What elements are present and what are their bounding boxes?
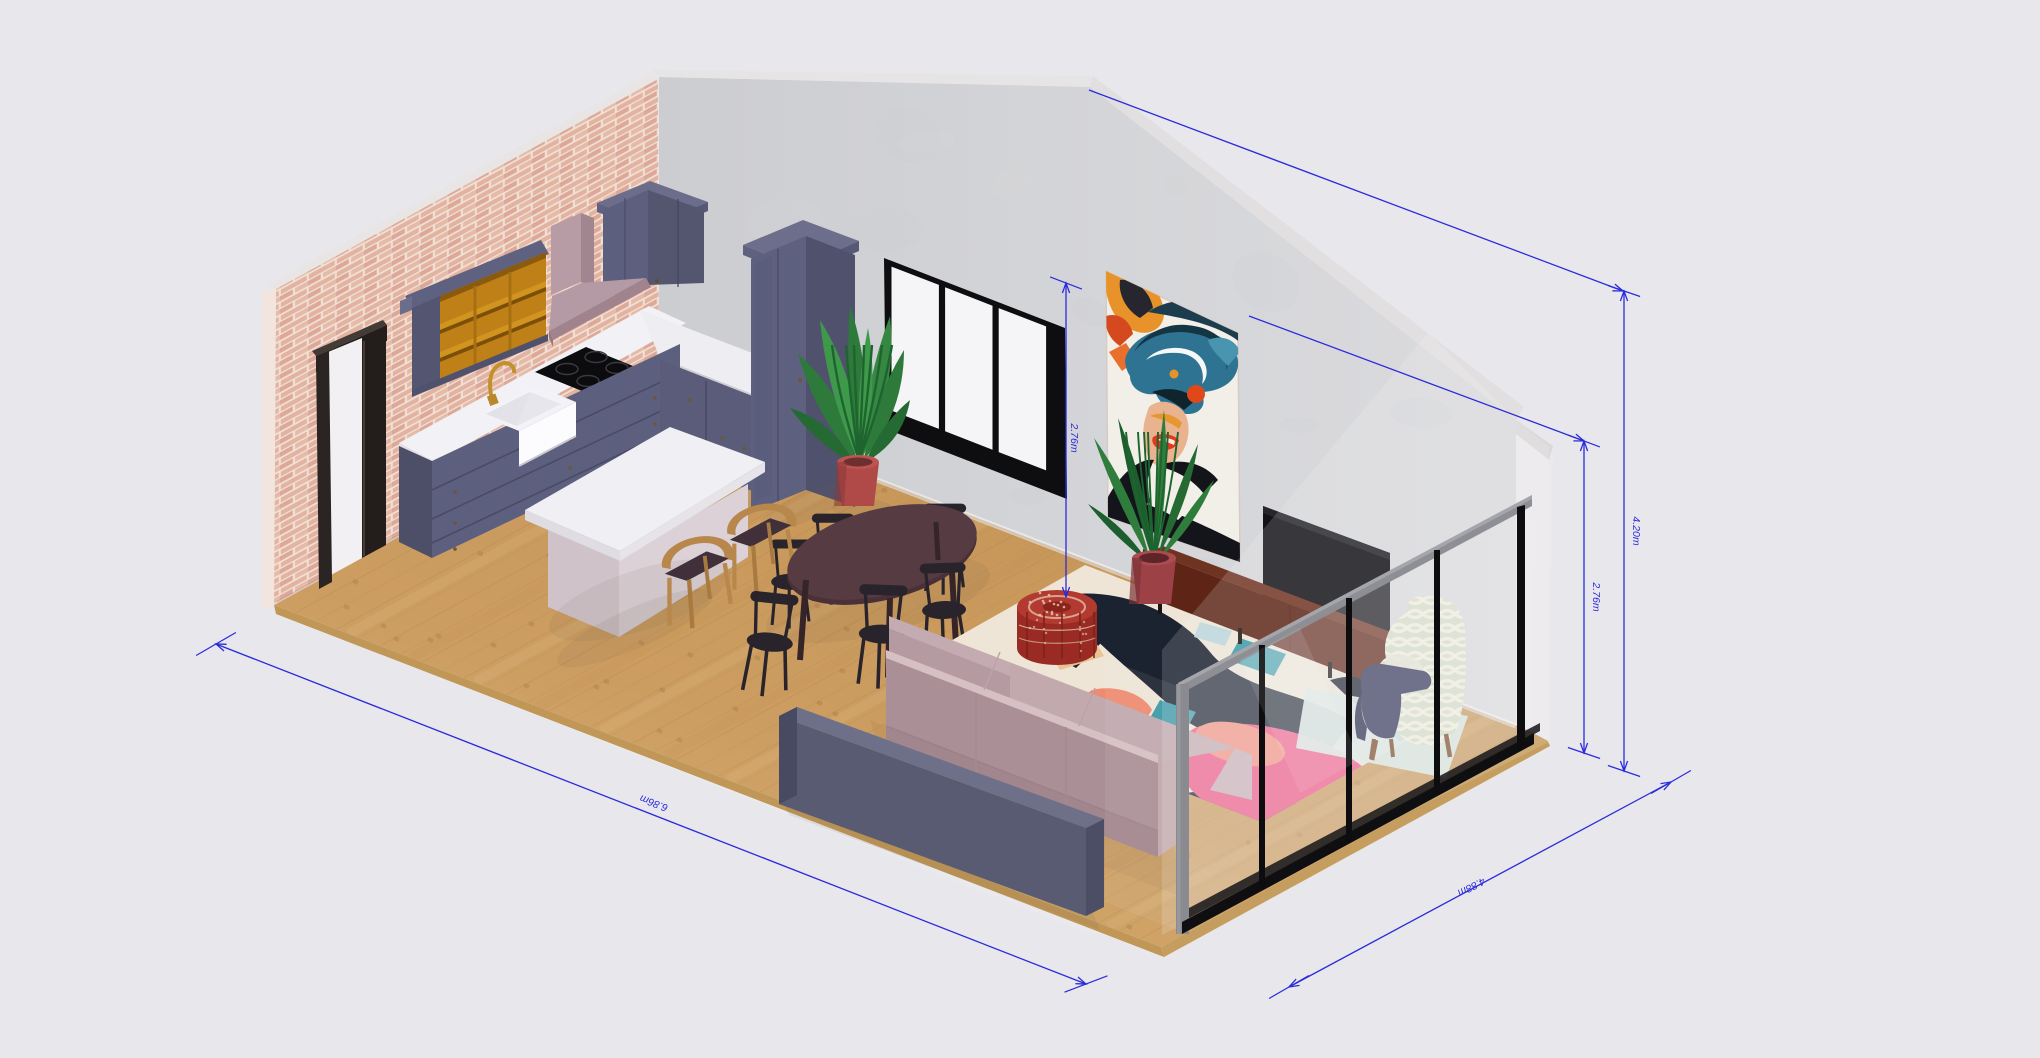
svg-text:4.20m: 4.20m	[1630, 516, 1642, 545]
svg-text:2.76m: 2.76m	[1068, 422, 1080, 452]
svg-text:2.76m: 2.76m	[1590, 581, 1602, 611]
